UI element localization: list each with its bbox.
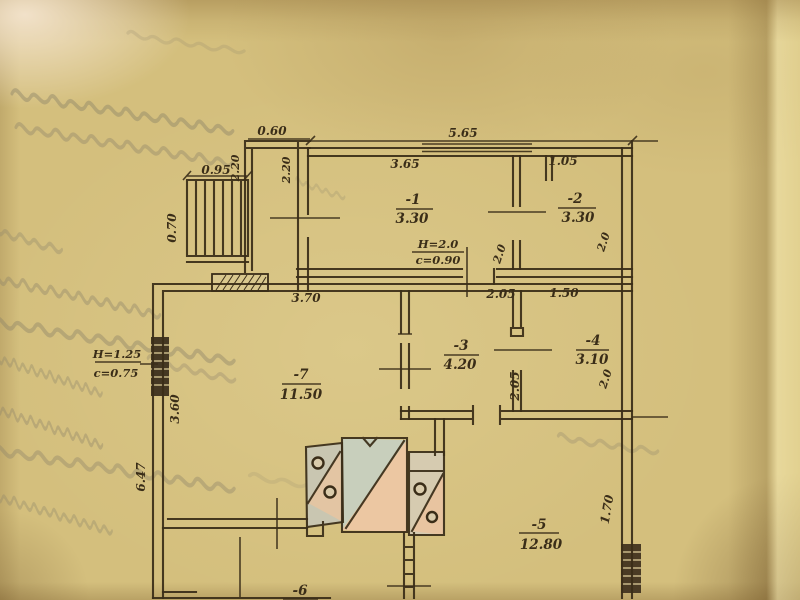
dim-stair-width: 0.95 bbox=[201, 163, 230, 177]
room-2-number: -2 bbox=[568, 191, 583, 207]
room-5-label: -5 12.80 bbox=[519, 517, 563, 553]
room-1-label: -1 3.30 bbox=[396, 192, 433, 227]
room-4-label: -4 3.10 bbox=[576, 333, 609, 368]
room-3-label: -3 4.20 bbox=[444, 338, 479, 373]
floor-plan-sheet: 0.95 0.70 0.60 2.20 2.20 5.65 3.65 1.05 … bbox=[0, 0, 800, 600]
window-top-wall bbox=[212, 274, 268, 291]
dim-stair-depth: 0.70 bbox=[165, 213, 179, 243]
dim-room1-width: 3.65 bbox=[390, 157, 419, 171]
room-2-label: -2 3.30 bbox=[558, 191, 596, 226]
room-4-number: -4 bbox=[586, 333, 601, 349]
window-height-note: H=1.25 bbox=[92, 347, 142, 361]
dim-room3-depth: 2.05 bbox=[508, 371, 522, 401]
dim-room5-side: 1.70 bbox=[598, 493, 617, 525]
room-3-number: -3 bbox=[454, 338, 469, 354]
dim-room4-segment: 1.50 bbox=[549, 286, 579, 300]
room-6-label: -6 bbox=[283, 583, 318, 599]
door-clear-note: c=0.90 bbox=[416, 253, 461, 267]
stove-ring-3 bbox=[415, 484, 426, 495]
dim-left-lower: 6.47 bbox=[134, 462, 148, 492]
room-1-area: 3.30 bbox=[396, 211, 429, 227]
room-4-area: 3.10 bbox=[576, 352, 609, 368]
dim-porch-left: 2.20 bbox=[229, 154, 242, 182]
stove-ring-1 bbox=[313, 458, 324, 469]
room-2-area: 3.30 bbox=[562, 210, 595, 226]
dim-left-upper: 3.60 bbox=[168, 394, 182, 424]
room-3-area: 4.20 bbox=[444, 357, 477, 373]
dim-room2-depth: 2.0 bbox=[594, 230, 613, 253]
dim-room7-width: 3.70 bbox=[291, 291, 321, 305]
room-7-label: -7 11.50 bbox=[280, 367, 323, 403]
window-clear-note: c=0.75 bbox=[94, 366, 139, 380]
room-5-area: 12.80 bbox=[520, 537, 563, 553]
room-6-number: -6 bbox=[293, 583, 309, 599]
dim-porch-right: 2.20 bbox=[280, 156, 293, 184]
room-1-number: -1 bbox=[406, 192, 421, 208]
room-7-number: -7 bbox=[294, 367, 310, 383]
dim-room2-segment: 1.05 bbox=[548, 154, 577, 168]
dim-room4-depth: 2.0 bbox=[596, 367, 615, 390]
stove bbox=[306, 438, 444, 536]
room-7-area: 11.50 bbox=[280, 387, 323, 403]
floor-plan-drawing: 0.95 0.70 0.60 2.20 2.20 5.65 3.65 1.05 … bbox=[0, 0, 800, 600]
room-5-number: -5 bbox=[532, 517, 547, 533]
door-height-note: H=2.0 bbox=[417, 237, 459, 251]
dim-porch-width: 0.60 bbox=[257, 124, 287, 138]
dim-hall-depth: 2.0 bbox=[490, 242, 509, 265]
stove-ring-4 bbox=[427, 512, 437, 522]
dim-front-total: 5.65 bbox=[448, 126, 477, 140]
dim-room3-segment: 2.05 bbox=[485, 287, 515, 301]
stove-ring-2 bbox=[325, 487, 336, 498]
walls-middle-block bbox=[153, 284, 668, 598]
